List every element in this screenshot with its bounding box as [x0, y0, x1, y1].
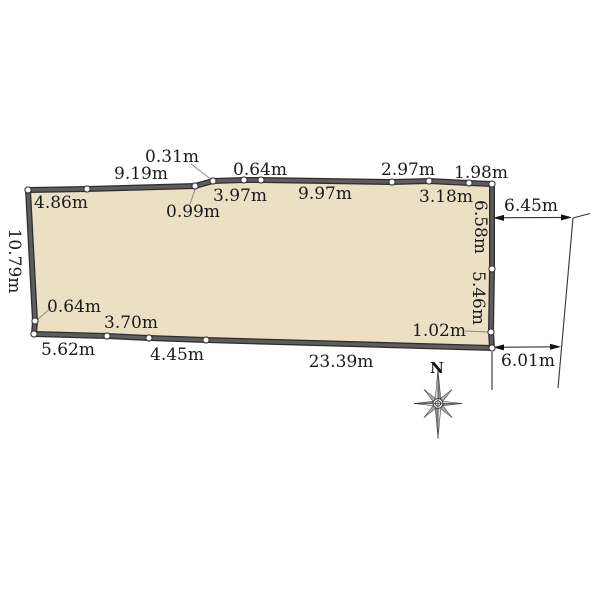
dim-label-4-45m: 4.45m: [150, 345, 204, 365]
dim-label-6-45m: 6.45m: [504, 196, 558, 216]
dim-label-6-01m: 6.01m: [501, 351, 555, 371]
dim-label-4-86m: 4.86m: [34, 193, 88, 213]
dim-label-0-64m-bottom: 0.64m: [47, 297, 101, 317]
dim-label-3-70m: 3.70m: [104, 313, 158, 333]
dim-label-23-39m: 23.39m: [309, 352, 374, 372]
dim-label-9-97m: 9.97m: [298, 184, 352, 204]
dim-label-9-19m: 9.19m: [114, 164, 168, 184]
road-width-lower-dimline: [496, 347, 558, 348]
dim-label-10-79m: 10.79m: [4, 229, 24, 294]
dim-label-3-97m: 3.97m: [213, 186, 267, 206]
dim-label-1-98m: 1.98m: [454, 163, 508, 183]
dim-label-5-62m: 5.62m: [41, 340, 95, 360]
dim-label-2-97m: 2.97m: [381, 160, 435, 180]
north-label: N: [430, 359, 444, 377]
dim-label-6-58m: 6.58m: [470, 200, 490, 254]
land-survey-diagram: 0.31m 9.19m 0.64m 2.97m 1.98m 4.86m 0.99…: [0, 0, 600, 600]
dim-label-0-99m: 0.99m: [166, 202, 220, 222]
dim-label-1-02m: 1.02m: [412, 321, 466, 341]
dim-label-3-18m: 3.18m: [419, 187, 473, 207]
dim-label-0-64m-top: 0.64m: [233, 160, 287, 180]
dim-label-5-46m: 5.46m: [468, 271, 488, 325]
